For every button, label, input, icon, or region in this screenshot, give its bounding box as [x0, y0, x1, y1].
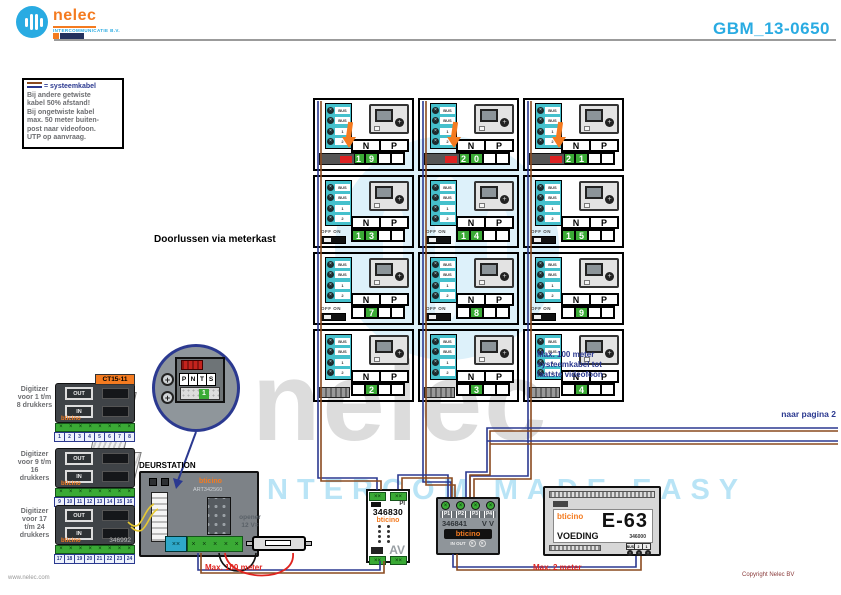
screw-icon: ×: [537, 215, 544, 222]
column-header-n: N: [456, 370, 486, 383]
videophone-icon: +: [474, 181, 514, 211]
screw-icon: ×: [327, 271, 334, 278]
screw-icon: ×: [327, 292, 334, 299]
jumper-icon: [319, 387, 350, 398]
screw-icon: ×: [432, 194, 439, 201]
column-header-n: N: [351, 370, 381, 383]
speaker-icon: [149, 478, 157, 486]
part-number: 346841: [442, 519, 467, 528]
screw-icon: ×: [327, 215, 334, 222]
videophone-unit: ×BUS ×BUS ×1 ×2 + N P 2 1: [523, 98, 624, 171]
nelec-logo-icon: [16, 6, 48, 38]
bus-terminal-block: ×BUS ×BUS ×1 ×2: [535, 103, 562, 149]
column-header-n: N: [456, 293, 486, 306]
dip-switch-icon: [426, 313, 451, 321]
dip-switch-icon: [531, 236, 556, 244]
screw-icon: ×: [537, 117, 544, 124]
detail-terminal-labels: PNTS: [180, 373, 216, 386]
phone-dial-icon: +: [500, 272, 509, 281]
videophone-icon: +: [579, 258, 619, 288]
column-header-n: N: [561, 139, 591, 152]
column-header-n: N: [351, 216, 381, 229]
phone-screen-icon: [375, 340, 393, 353]
screw-icon: ×: [537, 194, 544, 201]
brand-label: bticino: [444, 529, 492, 539]
ribbon-socket-icon: [102, 388, 129, 399]
phone-screen-icon: [375, 109, 393, 122]
module-346841: ×××× P1P2P3P4 346841V V bticino IN OUT××: [436, 497, 500, 555]
out-port: OUT: [65, 387, 93, 400]
phone-button-icon: [479, 203, 485, 208]
np-address-table: N P 2 1: [561, 139, 619, 165]
brand-label: bticino: [369, 517, 407, 524]
videophone-unit: ×BUS ×BUS ×1 ×2 + N P 1 5 OFF ON: [523, 175, 624, 248]
phone-button-icon: [479, 126, 485, 131]
screw-icon: ×: [327, 107, 334, 114]
screw-icon: ×: [537, 261, 544, 268]
screw-icon: ×: [432, 138, 439, 145]
p-digit-cell: [390, 229, 405, 242]
screw-icon: ×: [432, 128, 439, 135]
videophone-icon: +: [369, 335, 409, 365]
terminals-top: ××××: [438, 501, 498, 510]
note-line: Bij andere getwiste: [27, 92, 119, 101]
bus-terminal-block: ×BUS ×BUS ×1 ×2: [325, 180, 352, 226]
p-digit-cell: [390, 383, 405, 396]
opener-label: opener 12 V=: [226, 514, 274, 530]
screw-icon: ×: [432, 338, 439, 345]
brand-label: bticino: [61, 538, 81, 544]
screw-icon: ×: [432, 107, 439, 114]
phone-dial-icon: +: [395, 272, 404, 281]
column-header-p: P: [484, 370, 514, 383]
np-address-table: N P 3: [456, 370, 514, 396]
videophone-icon: +: [474, 104, 514, 134]
column-header-p: P: [379, 216, 409, 229]
screw-icon: ×: [327, 184, 334, 191]
bus-terminal-labels: BUS21: [627, 543, 651, 550]
bticino-logo: [53, 33, 84, 39]
digitizer-module: Digitizer voor 1 t/m 8 drukkers CT15-11 …: [55, 383, 135, 442]
videophone-unit: ×BUS ×BUS ×1 ×2 + N P 2: [313, 329, 414, 402]
cable-pair-icon: [27, 82, 42, 88]
p-digit-cell: [600, 229, 615, 242]
deurstation-brand: bticino: [199, 478, 222, 485]
screw-icon: ×: [327, 369, 334, 376]
terminal-strip: ××××××××: [55, 488, 135, 497]
videophone-icon: +: [474, 335, 514, 365]
np-address-table: N P 1 3: [351, 216, 409, 242]
connector-icon: [371, 547, 383, 554]
screw-icon: ×: [537, 107, 544, 114]
detail-address-value: 1: [199, 389, 209, 399]
deurstation-title: DEURSTATION: [139, 461, 196, 470]
column-header-p: P: [589, 216, 619, 229]
videophone-unit: ×BUS ×BUS ×1 ×2 + N P 8 OFF ON: [418, 252, 519, 325]
note-line: UTP op aanvraag.: [27, 134, 119, 143]
column-header-p: P: [484, 293, 514, 306]
part-number: 346992: [109, 537, 131, 544]
bus-terminal-screws: ×××: [627, 550, 651, 556]
call-button-number: 8: [124, 432, 135, 442]
screw-icon: ×: [327, 205, 334, 212]
systeemkabel-note: = systeemkabel Bij andere getwiste kabel…: [22, 78, 124, 149]
rotary-dial-icon: +: [161, 391, 174, 404]
note-line: kabel 50% afstand!: [27, 100, 119, 109]
deurstation-bus-terminals: ××: [165, 536, 187, 552]
digitizer-cable-tag: CT15-11: [95, 374, 135, 385]
bus-terminal-block: ×BUS ×BUS ×1 ×2: [325, 257, 352, 303]
phone-dial-icon: +: [605, 349, 614, 358]
doorlussen-label: Doorlussen via meterkast: [154, 234, 276, 245]
videophone-unit: ×BUS ×BUS ×1 ×2 + N P 7 OFF ON: [313, 252, 414, 325]
detail-zoom-circle: + + PNTS 1: [152, 344, 240, 432]
np-address-table: N P 7: [351, 293, 409, 319]
column-header-p: P: [379, 370, 409, 383]
screw-icon: ×: [469, 540, 476, 547]
screw-icon: ×: [432, 205, 439, 212]
jumper-icon: [424, 387, 455, 398]
jumper-icon: [529, 387, 560, 398]
button-number-strip: 1718192021222324: [55, 554, 135, 564]
p-digit-cell: [600, 383, 615, 396]
phone-dial-icon: +: [500, 118, 509, 127]
column-header-p: P: [589, 293, 619, 306]
screw-icon: ×: [432, 261, 439, 268]
phone-button-icon: [479, 357, 485, 362]
brand-name: nelec: [53, 7, 96, 28]
detail-connector-icon: [181, 360, 203, 370]
screw-icon: ×: [432, 117, 439, 124]
legend-line: = systeemkabel: [27, 82, 119, 92]
screw-icon: ×: [327, 282, 334, 289]
port-labels: P1P2P3P4: [440, 511, 496, 518]
phone-screen-icon: [480, 186, 498, 199]
max-system-label: Max. 100 meter systeemkabel tot laatste …: [537, 350, 603, 380]
phone-screen-icon: [585, 109, 603, 122]
phone-button-icon: [374, 280, 380, 285]
terminal-strip-top: [549, 491, 655, 498]
column-header-p: P: [379, 139, 409, 152]
phone-screen-icon: [375, 186, 393, 199]
phone-dial-icon: +: [500, 195, 509, 204]
terminal-strip-bottom: [549, 545, 601, 551]
button-number-strip: 12345678: [55, 432, 135, 442]
phone-button-icon: [374, 203, 380, 208]
screw-icon: ×: [432, 271, 439, 278]
phone-screen-icon: [585, 186, 603, 199]
screw-icon: ×: [432, 369, 439, 376]
screw-icon: ×: [327, 359, 334, 366]
max-2-meter-label: Max. 2 meter: [533, 563, 581, 572]
ribbon-socket-icon: [102, 471, 129, 482]
phone-screen-icon: [480, 109, 498, 122]
digitizer-body: OUT IN bticino: [55, 448, 135, 488]
bus-terminal-block: ×BUS ×BUS ×1 ×2: [430, 103, 457, 149]
terminals-bottom: ××××: [369, 556, 407, 565]
ribbon-socket-icon: [102, 453, 129, 464]
detail-dip-strip: 1: [180, 387, 220, 400]
terminals-top: ××××: [369, 492, 407, 501]
screw-icon: ×: [479, 540, 486, 547]
screw-icon: ×: [432, 282, 439, 289]
column-header-n: N: [456, 139, 486, 152]
max-100-meter-label: Max. 100 meter: [205, 563, 262, 572]
bus-terminal-block: ×BUS ×BUS ×1 ×2: [430, 334, 457, 380]
phone-screen-icon: [585, 263, 603, 276]
videophone-unit: ×BUS ×BUS ×1 ×2 + N P 3: [418, 329, 519, 402]
bus-terminal-block: ×BUS ×BUS ×1 ×2: [535, 180, 562, 226]
rotary-dial-icon: +: [161, 373, 174, 386]
np-address-table: N P 2: [351, 370, 409, 396]
phone-button-icon: [584, 280, 590, 285]
ribbon-socket-icon: [102, 406, 129, 417]
p-digit-cell: [390, 306, 405, 319]
videophone-unit: ×BUS ×BUS ×1 ×2 + N P 1 3 OFF ON: [313, 175, 414, 248]
screw-icon: ×: [537, 338, 544, 345]
psu-label-panel: bticino E-63 VOEDING 346000: [553, 509, 653, 543]
column-header-p: P: [484, 139, 514, 152]
phone-screen-icon: [375, 263, 393, 276]
out-port: OUT: [65, 452, 93, 465]
column-header-n: N: [561, 216, 591, 229]
column-header-n: N: [351, 139, 381, 152]
np-address-table: N P 1 5: [561, 216, 619, 242]
screw-icon: ×: [327, 261, 334, 268]
switch-icon: [553, 501, 568, 507]
voeding-label: VOEDING: [557, 531, 599, 541]
deurstation-output-terminals: ×××××: [187, 536, 243, 552]
note-line: max. 50 meter buiten-: [27, 117, 119, 126]
digitizer-label: Digitizer voor 17 t/m 24 drukkers: [16, 508, 53, 540]
deurstation-part-number: ART342560: [193, 487, 222, 493]
power-supply-E63: bticino E-63 VOEDING 346000 BUS21 ×××: [543, 486, 661, 556]
bus-terminal-block: ×BUS ×BUS ×1 ×2: [535, 257, 562, 303]
deurstation-connector: [151, 492, 168, 542]
phone-dial-icon: +: [395, 349, 404, 358]
videophone-unit: ×BUS ×BUS ×1 ×2 + N P 9 OFF ON: [523, 252, 624, 325]
av-label: AV: [389, 544, 405, 556]
screw-icon: ×: [327, 117, 334, 124]
p-digit-cell: [495, 229, 510, 242]
phone-screen-icon: [480, 263, 498, 276]
speaker-icon: [161, 478, 169, 486]
np-address-table: N P 1 9: [351, 139, 409, 165]
screw-icon: ×: [432, 184, 439, 191]
phone-dial-icon: +: [395, 195, 404, 204]
phone-button-icon: [479, 280, 485, 285]
website-link[interactable]: www.nelec.com: [8, 575, 50, 581]
io-label: IN OUT: [450, 541, 465, 546]
p-digit-cell: [600, 152, 615, 165]
naar-pagina-label: naar pagina 2: [696, 409, 836, 419]
dip-switch-icon: [321, 313, 346, 321]
p-digit-cell: [600, 306, 615, 319]
videophone-icon: +: [474, 258, 514, 288]
column-header-p: P: [589, 139, 619, 152]
dip-switch-icon: [321, 236, 346, 244]
videophone-icon: +: [579, 104, 619, 134]
ribbon-socket-icon: [102, 510, 129, 521]
phone-dial-icon: +: [605, 272, 614, 281]
module-346830: ×××× PI 346830 bticino AV ××××: [366, 489, 410, 563]
digitizer-module: Digitizer voor 9 t/m 16 drukkers OUT IN …: [55, 448, 135, 507]
model-label: E-63: [602, 510, 648, 533]
screw-icon: ×: [537, 205, 544, 212]
dip-switches-icon: [375, 524, 401, 544]
column-header-p: P: [379, 293, 409, 306]
screw-icon: ×: [327, 338, 334, 345]
document-number: GBM_13-0650: [640, 19, 830, 39]
phone-screen-icon: [480, 340, 498, 353]
phone-dial-icon: +: [500, 349, 509, 358]
dip-switch-icon: [426, 236, 451, 244]
copyright-label: Copyright Nelec BV: [742, 572, 794, 578]
part-number: 346830: [369, 507, 407, 517]
videophone-icon: +: [369, 104, 409, 134]
column-header-n: N: [456, 216, 486, 229]
column-header-n: N: [351, 293, 381, 306]
screw-icon: ×: [432, 215, 439, 222]
videophone-unit: ×BUS ×BUS ×1 ×2 + N P 2 0: [418, 98, 519, 171]
phone-button-icon: [584, 203, 590, 208]
videophone-icon: +: [369, 258, 409, 288]
np-address-table: N P 2 0: [456, 139, 514, 165]
termination-connector-icon: [424, 153, 460, 165]
bus-terminal-block: ×BUS ×BUS ×1 ×2: [325, 103, 352, 149]
digitizer-label: Digitizer voor 1 t/m 8 drukkers: [16, 386, 53, 410]
screw-icon: ×: [432, 348, 439, 355]
p-digit-cell: [495, 383, 510, 396]
phone-button-icon: [374, 357, 380, 362]
digitizer-body: OUT IN bticino 346992: [55, 505, 135, 545]
part-number: 346000: [629, 534, 646, 540]
bus-terminal-block: ×BUS ×BUS ×1 ×2: [430, 257, 457, 303]
screw-icon: ×: [537, 138, 544, 145]
screw-icon: ×: [537, 271, 544, 278]
screw-icon: ×: [327, 348, 334, 355]
screw-icon: ×: [537, 282, 544, 289]
note-line: post naar videofoon.: [27, 126, 119, 135]
screw-icon: ×: [327, 128, 334, 135]
screw-icon: ×: [327, 138, 334, 145]
videophone-icon: +: [369, 181, 409, 211]
np-address-table: N P 9: [561, 293, 619, 319]
phone-button-icon: [374, 126, 380, 131]
vv-label: V V: [482, 519, 494, 528]
np-address-table: N P 1 4: [456, 216, 514, 242]
termination-connector-icon: [319, 153, 355, 165]
phone-dial-icon: +: [605, 118, 614, 127]
screw-icon: ×: [537, 128, 544, 135]
screw-icon: ×: [537, 184, 544, 191]
phone-button-icon: [584, 126, 590, 131]
brand-label: bticino: [557, 512, 583, 521]
digitizer-module: Digitizer voor 17 t/m 24 drukkers OUT IN…: [55, 505, 135, 564]
bus-terminal-block: ×BUS ×BUS ×1 ×2: [325, 334, 352, 380]
videophone-icon: +: [579, 181, 619, 211]
schematic-page: nelec INTERCOM MADE EASY nelec intercomm…: [0, 0, 841, 595]
column-header-p: P: [484, 216, 514, 229]
screw-icon: ×: [327, 194, 334, 201]
screw-icon: ×: [432, 359, 439, 366]
p-digit-cell: [495, 152, 510, 165]
terminal-strip: ××××××××: [55, 545, 135, 554]
note-line: Bij ongetwiste kabel: [27, 109, 119, 118]
p-digit-cell: [390, 152, 405, 165]
videophone-unit: ×BUS ×BUS ×1 ×2 + N P 1 9: [313, 98, 414, 171]
bus-terminal-block: ×BUS ×BUS ×1 ×2: [430, 180, 457, 226]
brand-label: bticino: [61, 416, 81, 422]
termination-connector-icon: [529, 153, 565, 165]
digitizer-label: Digitizer voor 9 t/m 16 drukkers: [16, 451, 53, 483]
digitizer-body: OUT IN bticino: [55, 383, 135, 423]
screw-icon: ×: [537, 292, 544, 299]
out-port: OUT: [65, 509, 93, 522]
screw-icon: ×: [432, 292, 439, 299]
phone-dial-icon: +: [605, 195, 614, 204]
p-digit-cell: [495, 306, 510, 319]
phone-dial-icon: +: [395, 118, 404, 127]
column-header-n: N: [561, 293, 591, 306]
terminal-strip: ××××××××: [55, 423, 135, 432]
jumper-icon: [371, 502, 381, 507]
brand-label: bticino: [61, 481, 81, 487]
door-opener-icon: [246, 534, 312, 556]
dip-switch-icon: [531, 313, 556, 321]
call-button-number: 24: [124, 554, 135, 564]
header-divider: [54, 39, 836, 41]
np-address-table: N P 8: [456, 293, 514, 319]
videophone-unit: ×BUS ×BUS ×1 ×2 + N P 1 4 OFF ON: [418, 175, 519, 248]
